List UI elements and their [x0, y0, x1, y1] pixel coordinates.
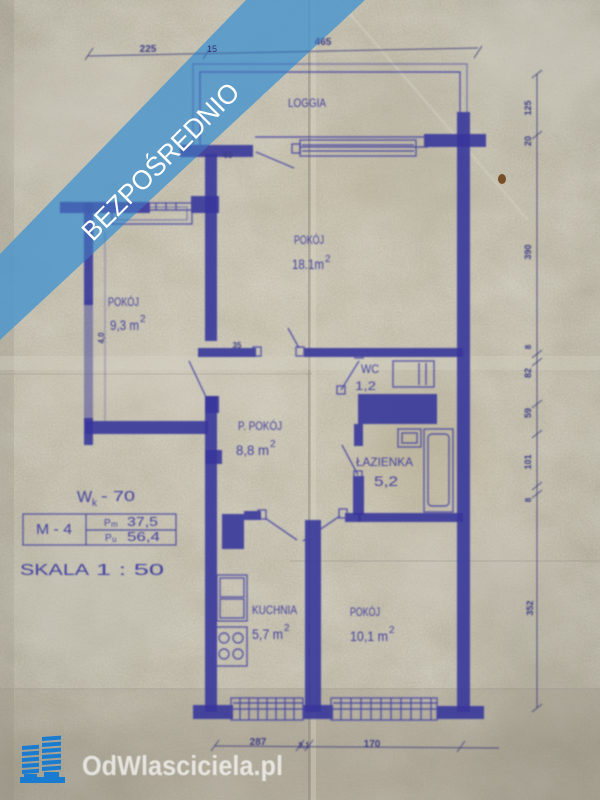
- svg-text:2: 2: [389, 625, 395, 636]
- svg-text:56,4: 56,4: [127, 529, 160, 544]
- svg-text:390: 390: [523, 244, 533, 259]
- svg-text:LOGGIA: LOGGIA: [288, 96, 326, 110]
- svg-text:M - 4: M - 4: [36, 521, 72, 538]
- svg-text:m: m: [111, 520, 118, 529]
- svg-text:2: 2: [270, 439, 276, 450]
- svg-text:125: 125: [523, 100, 533, 115]
- svg-text:20: 20: [523, 136, 533, 146]
- svg-text:u: u: [112, 535, 116, 544]
- svg-text:5,7 m: 5,7 m: [252, 626, 283, 642]
- svg-text:101: 101: [523, 454, 533, 469]
- svg-text:225: 225: [140, 44, 157, 55]
- svg-text:2: 2: [140, 314, 146, 325]
- svg-text:POKÓJ: POKÓJ: [350, 604, 380, 619]
- svg-text:POKÓJ: POKÓJ: [108, 294, 139, 309]
- svg-text:59: 59: [523, 408, 533, 418]
- svg-text:2: 2: [325, 254, 331, 265]
- svg-text:9,3 m: 9,3 m: [110, 317, 139, 333]
- svg-text:2: 2: [284, 623, 290, 634]
- svg-text:5,2: 5,2: [374, 473, 398, 489]
- svg-text:1,2: 1,2: [355, 379, 376, 393]
- svg-text:35: 35: [233, 341, 242, 350]
- svg-text:W: W: [77, 489, 93, 506]
- svg-text:P: P: [104, 518, 111, 529]
- svg-text:ŁAZIENKA: ŁAZIENKA: [356, 455, 413, 469]
- svg-text:8,1: 8,1: [298, 741, 310, 750]
- svg-text:WC: WC: [361, 362, 379, 376]
- svg-text:287: 287: [250, 737, 267, 748]
- svg-text:POKÓJ: POKÓJ: [294, 232, 324, 247]
- svg-text:8: 8: [524, 344, 533, 349]
- svg-text:KUCHNIA: KUCHNIA: [252, 603, 297, 617]
- svg-text:8,8 m: 8,8 m: [236, 442, 269, 458]
- svg-text:4,0: 4,0: [97, 332, 106, 344]
- svg-text:170: 170: [364, 739, 381, 750]
- svg-text:15: 15: [207, 44, 217, 54]
- svg-text:P. POKÓJ: P. POKÓJ: [238, 418, 282, 433]
- svg-text:37,5: 37,5: [127, 514, 158, 529]
- svg-text:10,1 m: 10,1 m: [350, 628, 388, 644]
- svg-text:18.1m: 18.1m: [292, 256, 324, 272]
- svg-text:1 : 50: 1 : 50: [96, 562, 164, 579]
- svg-text:OdWlasciciela.pl: OdWlasciciela.pl: [82, 750, 283, 781]
- svg-text:P: P: [105, 533, 112, 544]
- svg-text:352: 352: [525, 600, 535, 615]
- svg-text:8: 8: [524, 497, 533, 502]
- svg-text:82: 82: [523, 368, 533, 378]
- svg-text:65: 65: [224, 151, 233, 160]
- svg-text:- 70: - 70: [101, 488, 135, 505]
- svg-text:SKALA: SKALA: [20, 562, 89, 579]
